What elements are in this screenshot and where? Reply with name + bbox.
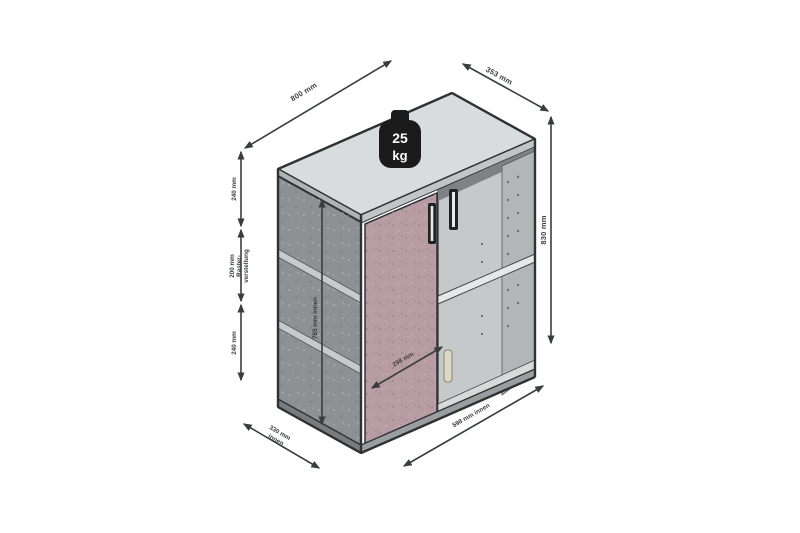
dim-shelf-mid-label-2: Raster- [236,255,243,277]
dim-shelf-bottom: 240 mm [231,305,241,380]
weight-unit: kg [392,148,407,163]
dim-shelf-mid-label-1: 200 mm [229,254,236,278]
dim-shelf-mid: 200 mm Raster- verstellung [229,230,250,301]
dim-shelf-mid-label-3: verstellung [243,249,250,283]
dim-shelf-top: 240 mm [231,152,241,226]
dim-shelf-top-label: 240 mm [231,177,238,201]
dim-height: 830 mm [539,117,551,343]
door-texture [365,193,437,451]
dim-inner-depth: 330 mm innen [244,424,319,468]
weight-value: 25 [392,130,408,146]
dim-height-label: 830 mm [539,215,548,244]
dim-inner-height-label: 785 mm innen [312,297,319,339]
dim-width-label: 800 mm [289,80,319,103]
product-dimension-image: 800 mm 353 mm 830 mm 240 mm 200 mm Raste… [0,0,800,533]
cabinet-diagram-svg: 800 mm 353 mm 830 mm 240 mm 200 mm Raste… [0,0,800,533]
door-handle-right [449,189,458,230]
hinge-fitting [444,350,452,382]
door-handle-left [428,203,436,244]
dim-depth: 353 mm [463,64,548,111]
dim-shelf-bottom-label: 240 mm [231,331,238,355]
